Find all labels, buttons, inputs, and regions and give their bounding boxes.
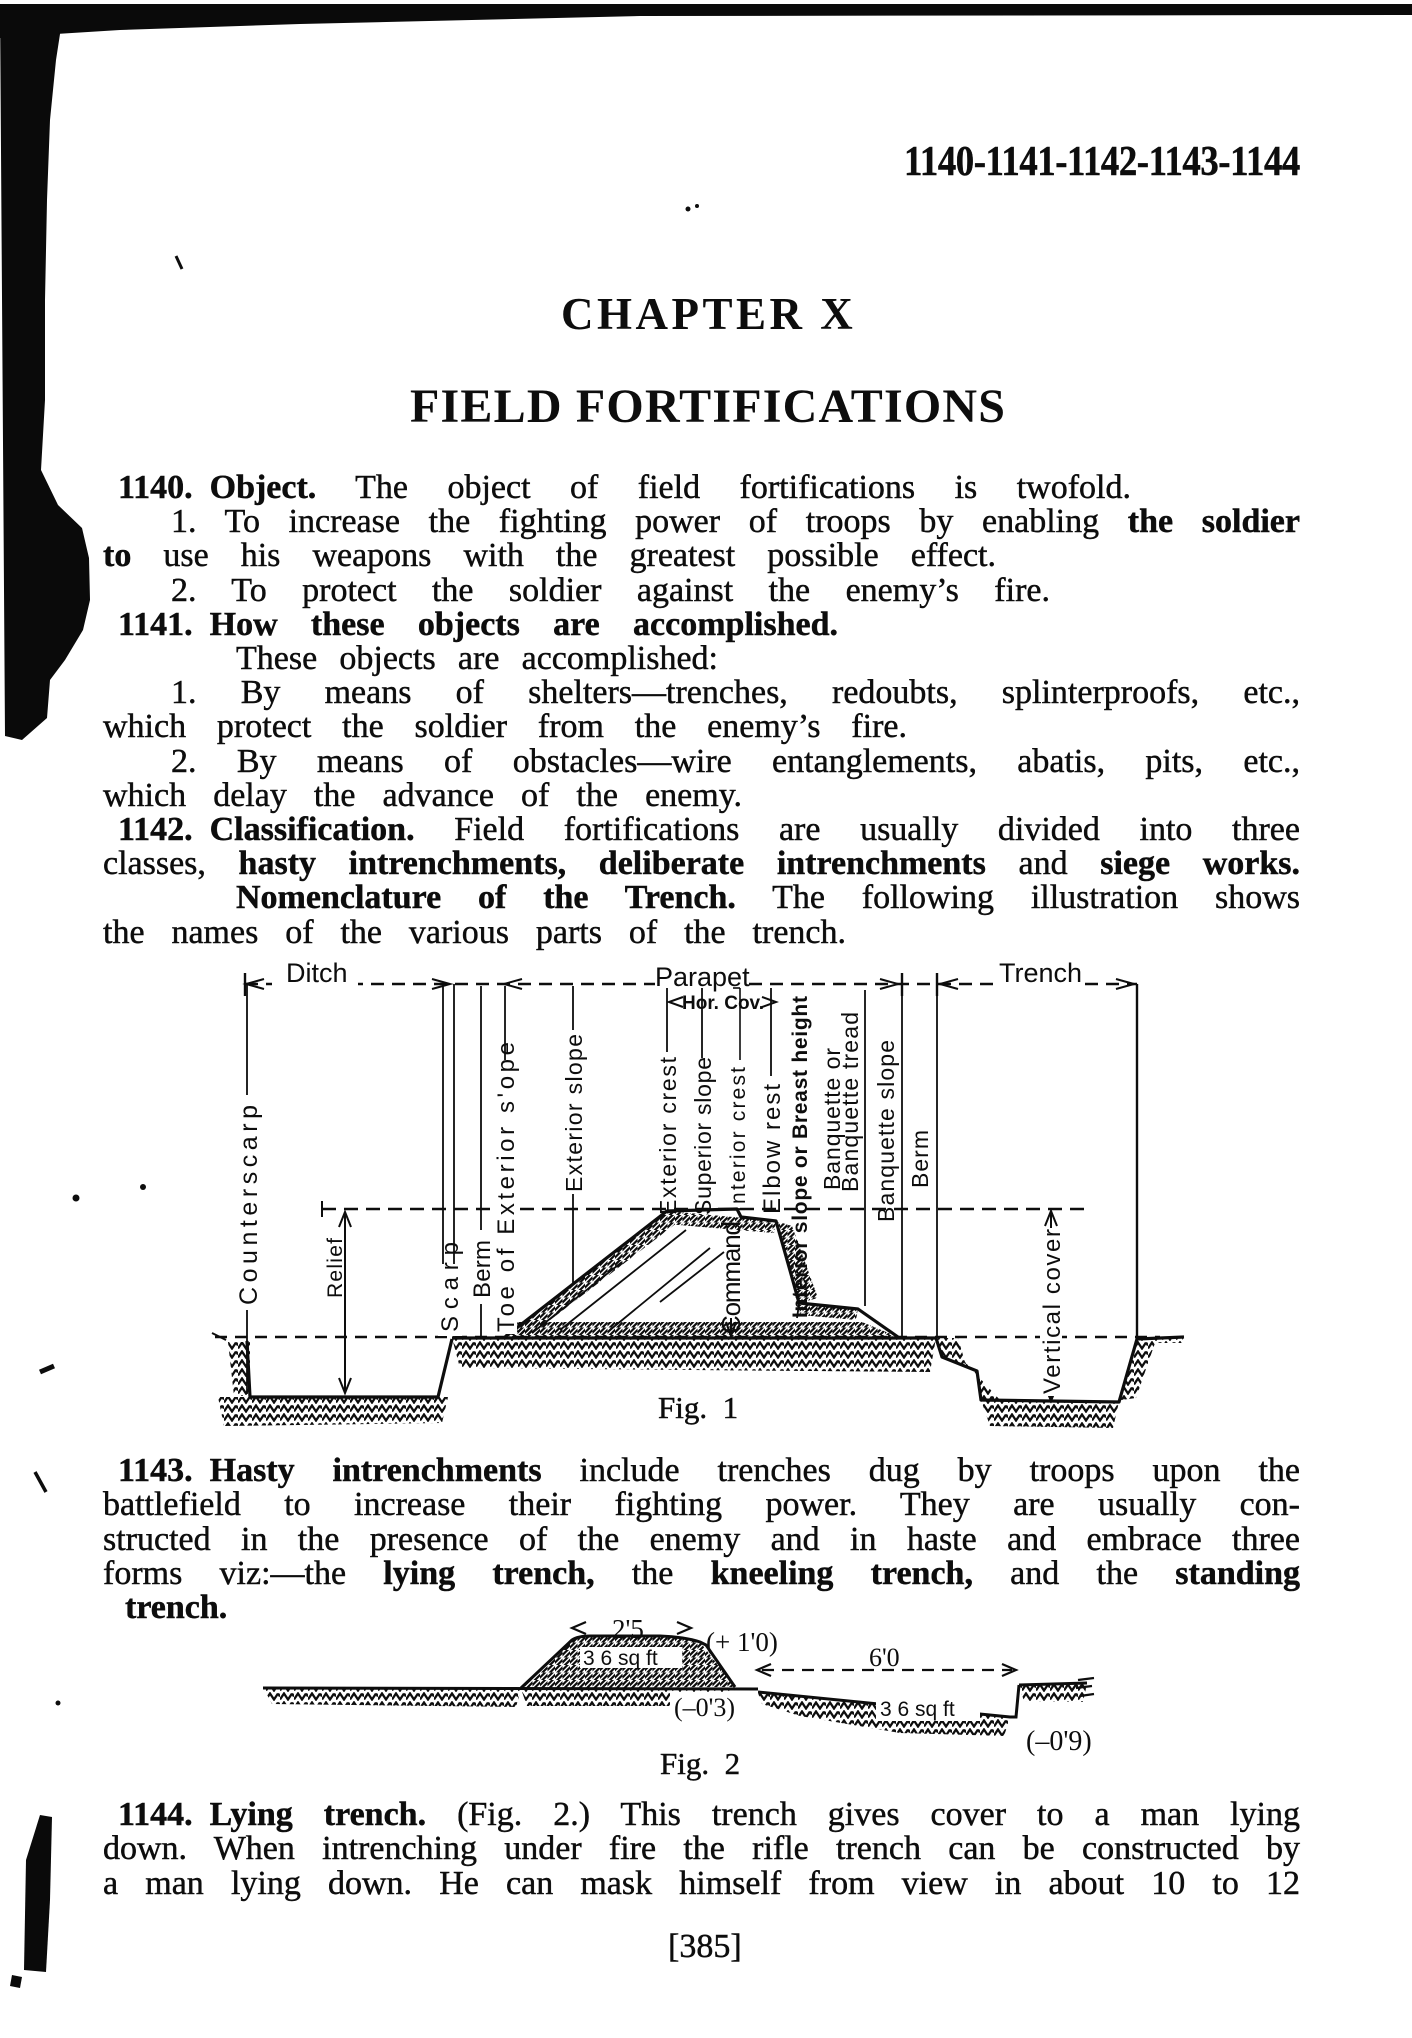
svg-text:Interior slope or Breast heigh: Interior slope or Breast height <box>789 996 812 1318</box>
svg-text:2'5: 2'5 <box>612 1614 644 1644</box>
svg-text:Ditch: Ditch <box>286 958 348 988</box>
svg-text:Interior crest: Interior crest <box>727 1067 750 1212</box>
svg-text:(–0'3): (–0'3) <box>674 1693 735 1722</box>
svg-text:Command: Command <box>716 1221 746 1334</box>
svg-text:Elbow rest: Elbow rest <box>759 1084 786 1214</box>
svg-text:(–0'9): (–0'9) <box>1026 1726 1092 1757</box>
svg-text:Berm: Berm <box>469 1240 496 1298</box>
svg-text:Superior slope: Superior slope <box>690 1057 716 1215</box>
svg-text:6'0: 6'0 <box>869 1643 900 1672</box>
svg-text:(+ 1'0): (+ 1'0) <box>706 1627 778 1657</box>
svg-text:Banquette slope: Banquette slope <box>873 1040 899 1222</box>
svg-text:Hor. Cov.: Hor. Cov. <box>682 993 764 1014</box>
svg-text:Scarp: Scarp <box>437 1242 464 1332</box>
svg-text:Toe of Exterior s'ope: Toe of Exterior s'ope <box>493 1042 520 1332</box>
svg-text:Banquette tread: Banquette tread <box>837 1012 863 1192</box>
svg-text:3 6 sq ft: 3 6 sq ft <box>583 1647 658 1670</box>
svg-text:Berm: Berm <box>907 1130 933 1188</box>
svg-text:Exterior crest: Exterior crest <box>655 1056 681 1215</box>
svg-text:Trench: Trench <box>999 958 1082 988</box>
svg-text:Relief: Relief <box>324 1238 347 1298</box>
svg-text:3 6 sq ft: 3 6 sq ft <box>880 1698 955 1721</box>
svg-text:Exterior slope: Exterior slope <box>561 1034 587 1192</box>
svg-text:Vertical cover: Vertical cover <box>1039 1229 1066 1394</box>
